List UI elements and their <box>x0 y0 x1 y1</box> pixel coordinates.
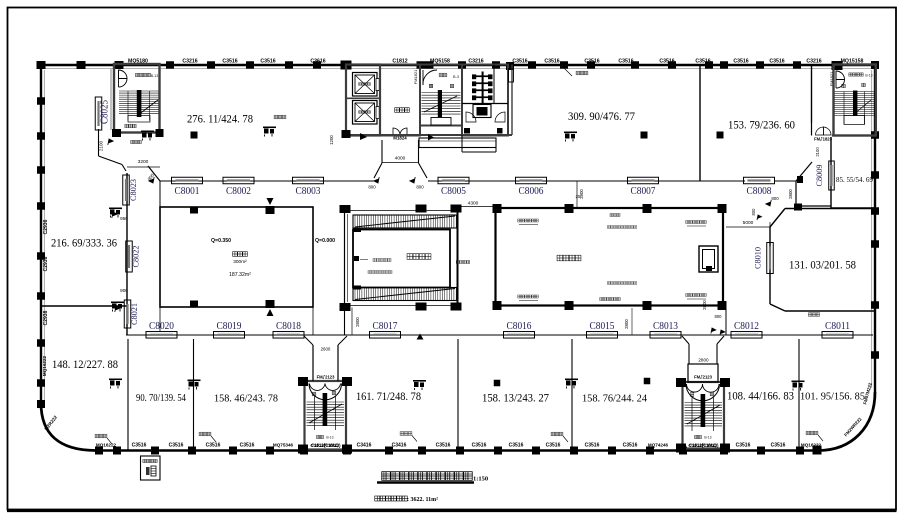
svg-text:C8002: C8002 <box>226 186 251 197</box>
svg-text:C2936: C2936 <box>43 219 49 234</box>
svg-text:C3516: C3516 <box>736 443 751 449</box>
svg-text:2600: 2600 <box>321 347 331 352</box>
svg-text:C8012: C8012 <box>734 321 759 332</box>
svg-text:900: 900 <box>120 288 128 293</box>
svg-text:C8013: C8013 <box>653 321 678 332</box>
svg-text:4300: 4300 <box>468 201 479 207</box>
svg-text:C2938: C2938 <box>43 310 49 325</box>
svg-text:161. 71/248. 78: 161. 71/248. 78 <box>356 391 421 403</box>
svg-text:800: 800 <box>715 314 723 319</box>
svg-text:C3616: C3616 <box>310 59 325 65</box>
svg-text:C3516: C3516 <box>623 443 638 449</box>
svg-text:C3516: C3516 <box>436 443 451 449</box>
svg-text:C3516: C3516 <box>584 59 599 65</box>
svg-text:2100: 2100 <box>815 147 820 157</box>
svg-text:2800: 2800 <box>698 358 709 363</box>
svg-text:C8022: C8022 <box>131 246 141 268</box>
svg-text:C3516: C3516 <box>509 443 524 449</box>
svg-text:4000: 4000 <box>395 156 406 162</box>
svg-text:C8015: C8015 <box>590 321 615 332</box>
svg-text:158. 76/244. 24: 158. 76/244. 24 <box>582 393 647 405</box>
svg-text:C3516: C3516 <box>769 59 784 65</box>
svg-text:C3516: C3516 <box>695 59 710 65</box>
svg-text:950: 950 <box>120 216 128 221</box>
svg-text:153. 79/236. 60: 153. 79/236. 60 <box>728 120 795 132</box>
svg-text:C3416: C3416 <box>357 443 372 449</box>
svg-text:C3516: C3516 <box>546 443 561 449</box>
svg-text:C8008: C8008 <box>747 186 772 197</box>
svg-text:C2938: C2938 <box>43 256 49 271</box>
svg-text:90. 70/139. 54: 90. 70/139. 54 <box>136 393 186 404</box>
svg-text:B-13: B-13 <box>704 436 711 440</box>
svg-text:C3516: C3516 <box>472 443 487 449</box>
svg-text:158. 46/243. 78: 158. 46/243. 78 <box>214 393 278 405</box>
svg-text:Q=0.350: Q=0.350 <box>211 238 231 244</box>
svg-text:800: 800 <box>771 196 779 201</box>
svg-text:MQ16222: MQ16222 <box>801 443 822 448</box>
svg-text:C3516: C3516 <box>659 59 674 65</box>
svg-text:C8020: C8020 <box>149 321 174 332</box>
svg-text:Q=0.000: Q=0.000 <box>315 238 335 244</box>
svg-text:C3216: C3216 <box>806 59 821 65</box>
svg-text:C3516: C3516 <box>512 59 527 65</box>
svg-text:187.32m²: 187.32m² <box>229 272 251 278</box>
svg-text:C8009: C8009 <box>814 165 824 187</box>
svg-text:C3516: C3516 <box>733 59 748 65</box>
svg-text:C8001: C8001 <box>175 186 200 197</box>
svg-text:148. 12/227. 88: 148. 12/227. 88 <box>52 359 118 371</box>
svg-text:C3516: C3516 <box>222 59 237 65</box>
svg-text:C1812(C1812): C1812(C1812) <box>688 443 719 448</box>
svg-text:MQ74246: MQ74246 <box>648 443 669 448</box>
svg-text:276. 11/424. 78: 276. 11/424. 78 <box>187 114 253 126</box>
svg-text:C3516: C3516 <box>240 443 255 449</box>
svg-text:C8006: C8006 <box>519 186 544 197</box>
svg-text:158. 13/243. 27: 158. 13/243. 27 <box>482 393 549 405</box>
svg-text:B-13: B-13 <box>326 436 333 440</box>
svg-text:M1824: M1824 <box>393 136 407 141</box>
svg-text:2800: 2800 <box>788 189 793 199</box>
svg-text:B-3: B-3 <box>453 75 459 79</box>
svg-text:MQ16222: MQ16222 <box>96 443 117 448</box>
svg-text:C3516: C3516 <box>206 443 221 449</box>
svg-text:108. 44/166. 83: 108. 44/166. 83 <box>727 391 794 403</box>
svg-text:C8021: C8021 <box>129 303 139 325</box>
svg-text:216. 69/333. 36: 216. 69/333. 36 <box>51 238 117 250</box>
svg-text:2800: 2800 <box>624 319 629 329</box>
svg-text:300m²: 300m² <box>233 259 247 265</box>
svg-text:101. 95/156. 85: 101. 95/156. 85 <box>800 391 865 403</box>
svg-text:C8018: C8018 <box>276 321 301 332</box>
svg-text:2800: 2800 <box>702 300 707 310</box>
svg-text:C3516: C3516 <box>585 443 600 449</box>
svg-text:1200: 1200 <box>329 135 334 145</box>
svg-text:C8010: C8010 <box>753 247 763 269</box>
svg-text:5000: 5000 <box>743 220 754 226</box>
svg-text:1:150: 1:150 <box>473 476 488 483</box>
svg-text:C3516: C3516 <box>544 59 559 65</box>
svg-text:C3516: C3516 <box>771 443 786 449</box>
svg-text:FM1821: FM1821 <box>413 69 418 84</box>
svg-text:800: 800 <box>751 208 756 216</box>
svg-text:C8011: C8011 <box>825 321 850 332</box>
svg-text:FM⑀2123: FM⑀2123 <box>694 375 713 380</box>
svg-text:B-13: B-13 <box>865 74 872 78</box>
svg-text:C8017: C8017 <box>373 321 398 332</box>
svg-text:C1812(C1812): C1812(C1812) <box>310 443 341 448</box>
svg-text:C8019: C8019 <box>217 321 242 332</box>
svg-text:2100: 2100 <box>99 140 104 151</box>
svg-text:C8003: C8003 <box>296 186 321 197</box>
svg-text:FM⑀2123: FM⑀2123 <box>317 375 336 380</box>
svg-text:131. 03/201. 58: 131. 03/201. 58 <box>789 260 856 272</box>
svg-text:C3516: C3516 <box>169 443 184 449</box>
svg-text:: 3622. 11m²: : 3622. 11m² <box>407 497 438 503</box>
svg-text:C8016: C8016 <box>507 321 532 332</box>
svg-text:C8007: C8007 <box>631 186 656 197</box>
svg-text:85. 55/54. 69: 85. 55/54. 69 <box>836 175 873 184</box>
svg-text:C3416: C3416 <box>392 443 407 449</box>
svg-text:C3516: C3516 <box>618 59 633 65</box>
svg-text:C8005: C8005 <box>441 186 466 197</box>
svg-text:FM⑀1823: FM⑀1823 <box>814 137 833 142</box>
svg-text:FM1821: FM1821 <box>829 71 834 86</box>
svg-text:2800: 2800 <box>355 317 360 327</box>
svg-text:800: 800 <box>416 185 424 190</box>
svg-text:3200: 3200 <box>138 159 149 165</box>
svg-text:C8023: C8023 <box>128 179 138 201</box>
svg-text:C3216: C3216 <box>182 59 197 65</box>
svg-text:309. 90/476. 77: 309. 90/476. 77 <box>568 111 635 123</box>
svg-text:C3516: C3516 <box>132 443 147 449</box>
svg-text:2800: 2800 <box>579 189 584 199</box>
svg-text:B-13: B-13 <box>151 74 159 78</box>
svg-text:C3516: C3516 <box>260 59 275 65</box>
svg-text:800: 800 <box>368 185 376 190</box>
svg-text:MQ16222: MQ16222 <box>42 355 47 376</box>
svg-text:MQ75346: MQ75346 <box>273 443 294 448</box>
svg-text:C8025: C8025 <box>100 100 111 124</box>
